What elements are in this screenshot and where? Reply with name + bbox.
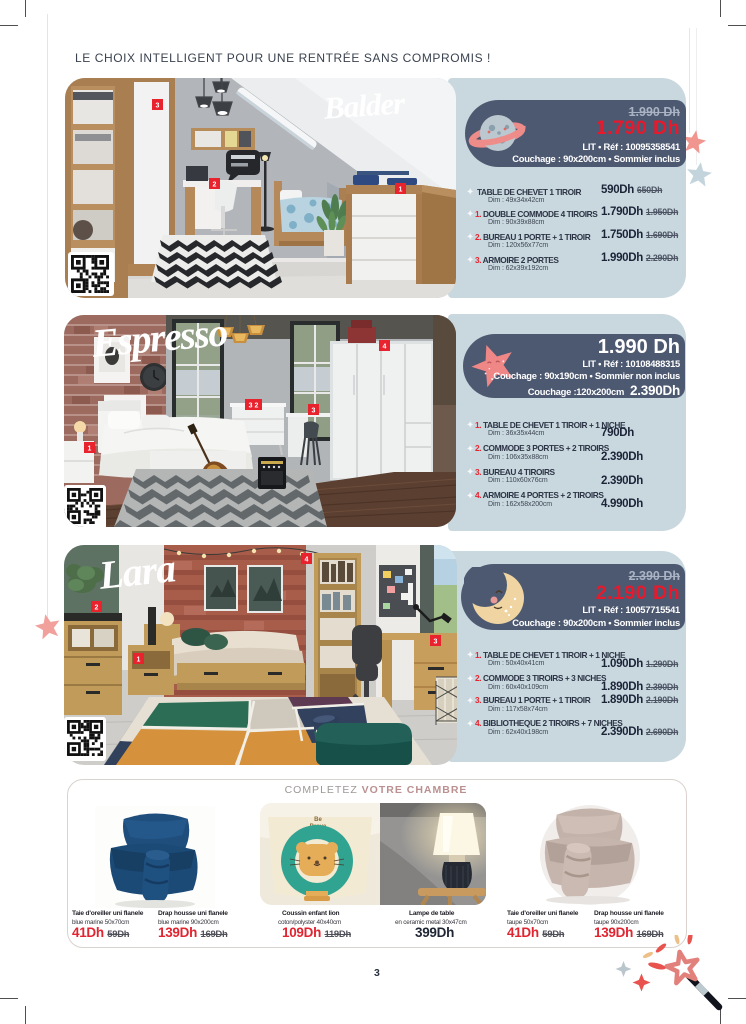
svg-text:4: 4	[383, 344, 387, 351]
svg-text:4: 4	[305, 557, 309, 564]
svg-text:1: 1	[137, 657, 141, 664]
svg-text:3 2: 3 2	[249, 403, 259, 410]
svg-text:2: 2	[213, 182, 217, 189]
svg-text:3: 3	[156, 103, 160, 110]
svg-text:Be: Be	[314, 817, 322, 823]
svg-text:2: 2	[95, 605, 99, 612]
svg-text:3: 3	[312, 408, 316, 415]
svg-text:3: 3	[434, 639, 438, 646]
svg-text:1: 1	[88, 446, 92, 453]
svg-text:1: 1	[399, 187, 403, 194]
